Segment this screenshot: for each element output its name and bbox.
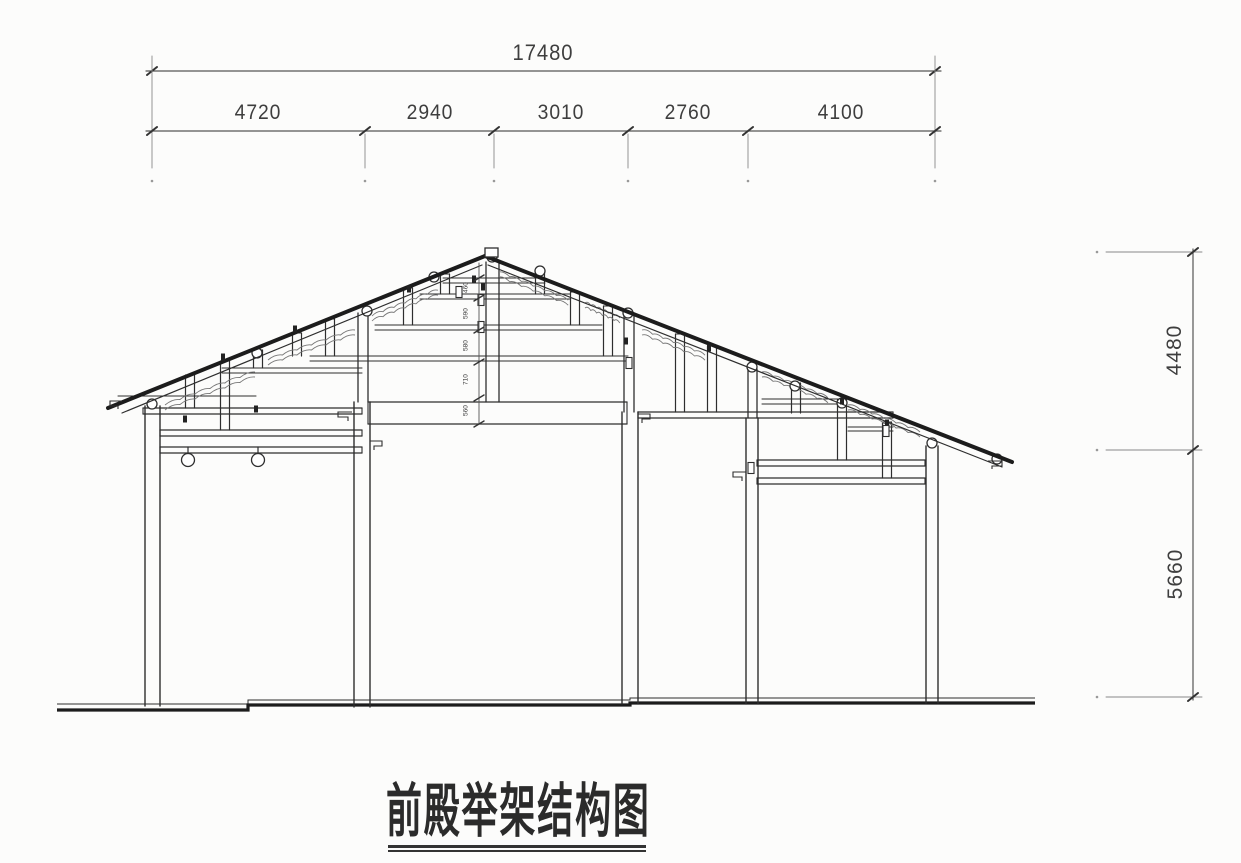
extension-dot (493, 180, 496, 183)
peg (254, 406, 258, 413)
ridge-dim-label: 560 (463, 399, 470, 423)
title-underline (388, 850, 646, 852)
extension-dot (1096, 696, 1099, 699)
drawing-title: 前殿举架结构图 (386, 764, 651, 848)
dim-segment-label: 3010 (529, 101, 593, 125)
peg (293, 326, 297, 333)
ridge-dim-label: 710 (463, 368, 470, 392)
peg (183, 416, 187, 423)
bracket-hook (733, 472, 746, 481)
mortise-slot (748, 463, 754, 474)
rafter-wave (498, 277, 568, 305)
dim-segment-label: 2760 (656, 101, 720, 125)
peg (840, 398, 844, 405)
rafter-wave (642, 330, 705, 355)
peg (481, 284, 485, 291)
dim-segment-label: 2940 (398, 101, 462, 125)
ridge-dim-label: 590 (463, 302, 470, 326)
extension-dot (1096, 449, 1099, 452)
dim-segment-label: 4100 (809, 101, 873, 125)
roof-slope-right (485, 256, 1012, 462)
ridge-cap (485, 248, 498, 257)
blueprint-canvas: 17480 4720 2940 3010 2760 4100 4480 5660… (0, 0, 1241, 863)
hanging-peg-circle (182, 454, 195, 467)
hanging-peg-circle (252, 454, 265, 467)
rafter-wave (165, 377, 255, 410)
ridge-dim-label: 580 (463, 334, 470, 358)
mortise-slot (456, 287, 462, 298)
mortise-slot (626, 358, 632, 369)
extension-dot (1096, 251, 1099, 254)
peg (707, 345, 711, 352)
extension-dot (151, 180, 154, 183)
dim-height-lower-label: 5660 (1164, 539, 1188, 609)
dim-total-label: 17480 (502, 40, 585, 66)
ridge-dim-label: 460 (463, 276, 470, 300)
extension-dot (747, 180, 750, 183)
rafter-wave (372, 290, 438, 316)
peg (221, 354, 225, 361)
rafter-line (122, 265, 482, 413)
rafter-line (488, 265, 1002, 467)
dim-segment-label: 4720 (226, 101, 290, 125)
extension-dot (934, 180, 937, 183)
extension-dot (627, 180, 630, 183)
section-drawing (0, 0, 1241, 863)
dim-height-upper-label: 4480 (1163, 315, 1187, 385)
bracket-hook (370, 441, 382, 450)
peg (624, 338, 628, 345)
peg (407, 286, 411, 293)
title-underline (388, 845, 646, 848)
mortise-slot (883, 426, 889, 437)
extension-dot (364, 180, 367, 183)
